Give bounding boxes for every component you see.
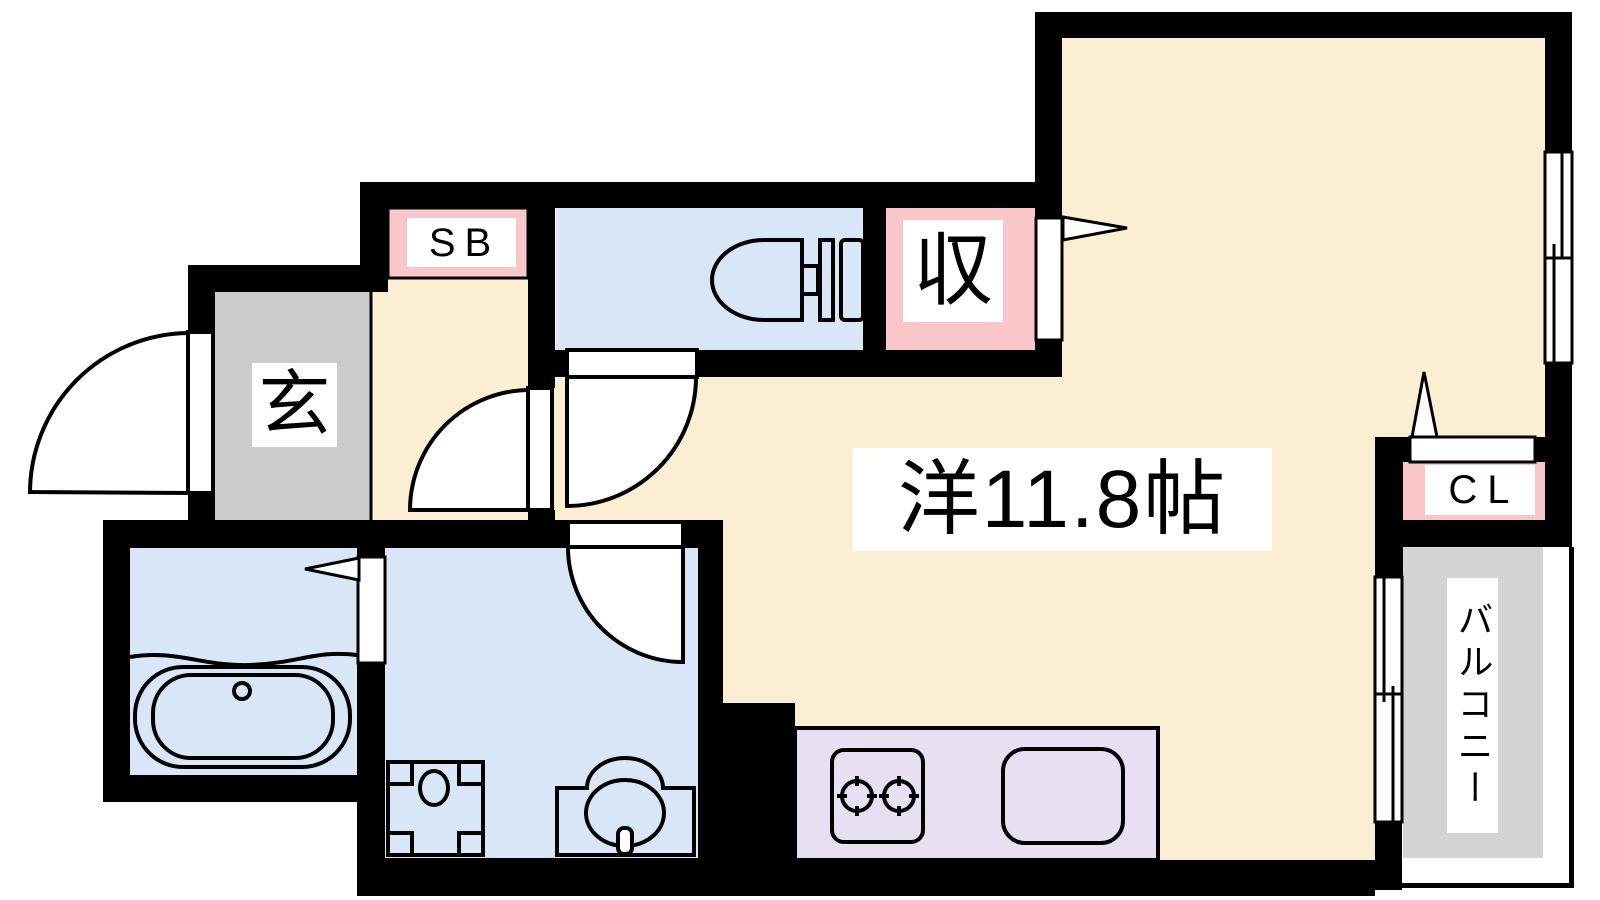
label-storage: 収 (903, 220, 1003, 322)
label-main-room: 洋11.8帖 (853, 448, 1272, 551)
window-east (1545, 152, 1572, 363)
floor-plan-drawing (0, 0, 1600, 900)
label-balcony: バルコニー (1447, 578, 1498, 833)
floor-plan: SB 玄 収 CL 洋11.8帖 バルコニー (0, 0, 1600, 900)
label-entrance: 玄 (252, 363, 337, 447)
door-leaf-washroom (568, 522, 683, 547)
door-leaf-hallway (528, 388, 552, 510)
window-balcony (1375, 577, 1402, 822)
door-swing-entrance (30, 333, 190, 493)
door-leaf-entrance (188, 332, 213, 493)
door-leaf-toilet (567, 350, 697, 377)
room-bathroom (130, 548, 357, 775)
opening-bathroom (358, 557, 385, 663)
opening-shuno (1036, 218, 1062, 340)
label-closet: CL (1425, 465, 1535, 515)
opening-cl (1410, 437, 1535, 462)
label-shoe-box: SB (407, 218, 516, 267)
